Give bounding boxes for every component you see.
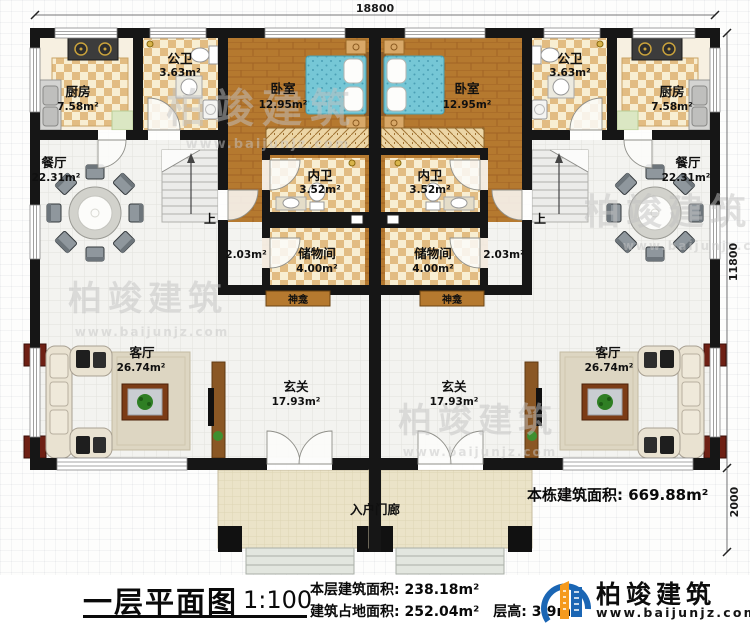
kitchen-right-label: 厨房 — [659, 84, 684, 99]
foyer-left-area: 17.93m² — [272, 396, 321, 408]
storage-right-area: 4.00m² — [412, 263, 454, 275]
kitchen-left-area: 7.58m² — [57, 101, 99, 113]
center-wall — [369, 28, 381, 552]
sofa-pillow — [93, 352, 106, 368]
watermark-url: www.baijunjz.com — [403, 445, 558, 459]
bath-left-label: 公卫 — [167, 51, 193, 66]
foyer-right-label: 玄关 — [441, 379, 467, 394]
porch-column — [218, 526, 242, 552]
dim-porch: 2000 — [728, 486, 741, 517]
floor-area-stat: 本层建筑面积: 238.18m² — [310, 579, 479, 599]
plant — [137, 394, 153, 410]
foyer-right-area: 17.93m² — [430, 396, 479, 408]
ensuite-right-area: 3.52m² — [409, 184, 451, 196]
ensuite-left-label: 内卫 — [307, 168, 333, 183]
dining-right-label: 餐厅 — [674, 155, 701, 170]
bath-right-area: 3.63m² — [549, 67, 591, 79]
stairs-up-right-label: 上 — [534, 211, 546, 226]
dim-top: 18800 — [356, 2, 395, 15]
total-building-area: 本栋建筑面积: 669.88m² — [527, 486, 708, 504]
dining-left-label: 餐厅 — [40, 155, 67, 170]
kitchen-door-mat — [112, 111, 133, 130]
kitchen-right-area: 7.58m² — [651, 101, 693, 113]
dining-right-area: 22.31m² — [662, 172, 711, 184]
sofa-pillow — [93, 437, 106, 453]
bedroom-left-area: 12.95m² — [259, 99, 308, 111]
stairs-up-left-label: 上 — [204, 211, 216, 226]
ensuite-left-area: 3.52m² — [299, 184, 341, 196]
porch-steps — [246, 548, 354, 574]
storage-left-label: 储物间 — [297, 246, 336, 261]
storage-right-label: 储物间 — [413, 246, 452, 261]
living-left-area: 26.74m² — [117, 362, 166, 374]
title-block: 一层平面图 1:100 本层建筑面积: 238.18m² 建筑占地面积: 252… — [0, 575, 750, 629]
shrine-left-label: 神龛 — [288, 293, 309, 306]
bath-left-area: 3.63m² — [159, 67, 201, 79]
pillow — [344, 59, 363, 83]
living-left-label: 客厅 — [128, 345, 155, 360]
door-knob — [349, 160, 355, 166]
door-knob — [147, 41, 153, 47]
nightstand — [346, 40, 366, 54]
brand-logo: 柏竣建筑 www.baijunjz.com — [536, 575, 750, 629]
bath-right-label: 公卫 — [557, 51, 583, 66]
plan-scale: 1:100 — [243, 586, 312, 614]
bedroom-right-label: 卧室 — [454, 81, 480, 96]
floor-plan-drawing: 柏竣建筑 www.baijunjz.com 柏竣建筑 www.baijunjz.… — [0, 0, 750, 575]
brand-website: www.baijunjz.com — [596, 605, 750, 620]
logo-building-orange — [560, 581, 569, 619]
living-right-label: 客厅 — [594, 345, 621, 360]
bedroom-left-label: 卧室 — [270, 81, 296, 96]
footprint-stat: 建筑占地面积: 252.04m²层高: 3.9m — [310, 601, 571, 621]
watermark-text: 柏竣建筑 — [68, 279, 228, 319]
storage-left-area: 4.00m² — [296, 263, 338, 275]
brand-logo-icon — [538, 577, 594, 627]
sofa-pillow — [76, 350, 90, 368]
dim-right: 11800 — [727, 243, 740, 282]
tv — [208, 388, 214, 426]
foyer-left-label: 玄关 — [283, 379, 309, 394]
shrine-right-label: 神龛 — [442, 293, 463, 306]
watermark-url: www.baijunjz.com — [75, 325, 230, 339]
bedroom-right-area: 12.95m² — [443, 99, 492, 111]
kitchen-left-label: 厨房 — [65, 84, 90, 99]
footprint-area: 建筑占地面积: 252.04m² — [310, 604, 479, 620]
understair-left-area: 2.03m² — [225, 249, 267, 261]
ensuite-sink — [283, 198, 299, 208]
living-right-area: 26.74m² — [585, 362, 634, 374]
watermark-text: 柏竣建筑 — [584, 192, 750, 233]
understair-right-area: 2.03m² — [483, 249, 525, 261]
dining-left-area: 22.31m² — [32, 172, 81, 184]
toilet — [191, 48, 209, 62]
porch-label: 入户门廊 — [350, 502, 401, 517]
sofa-pillow — [76, 436, 90, 454]
title-underline — [83, 615, 307, 618]
ensuite-right-label: 内卫 — [417, 168, 443, 183]
floor-plan-sheet: 柏竣建筑 www.baijunjz.com 柏竣建筑 www.baijunjz.… — [0, 0, 750, 629]
plant — [213, 431, 223, 441]
wall-niche — [351, 215, 363, 224]
watermark-url: www.baijunjz.com — [186, 137, 351, 152]
